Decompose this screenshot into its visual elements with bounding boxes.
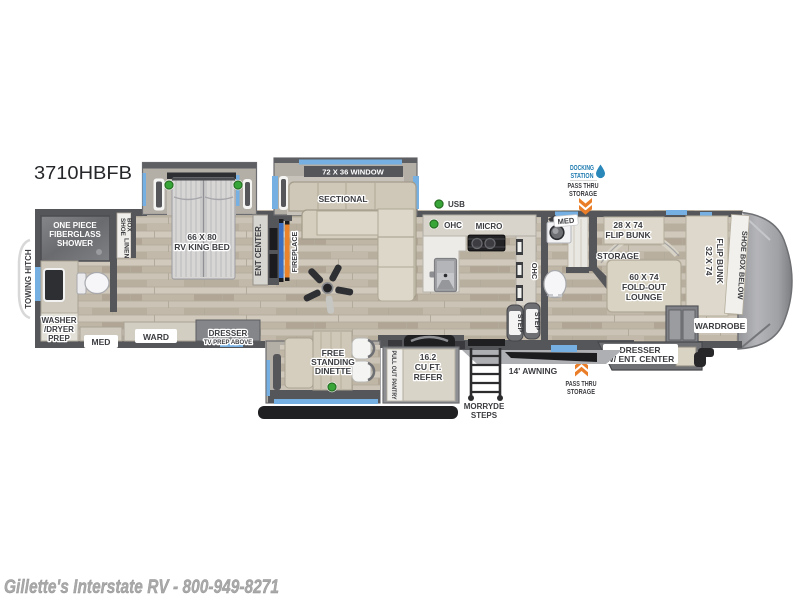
svg-text:BOX: BOX bbox=[126, 218, 133, 232]
svg-text:WARD: WARD bbox=[143, 332, 169, 342]
svg-text:TV PREP ABOVE: TV PREP ABOVE bbox=[204, 340, 252, 346]
svg-text:PASS THRU: PASS THRU bbox=[566, 381, 597, 388]
svg-text:SHOWER: SHOWER bbox=[57, 239, 93, 248]
svg-text:66 X 80: 66 X 80 bbox=[187, 232, 217, 242]
svg-text:FLIP BUNK: FLIP BUNK bbox=[715, 238, 725, 284]
svg-text:3710HBFB: 3710HBFB bbox=[34, 162, 132, 183]
svg-text:WASHER: WASHER bbox=[41, 316, 76, 325]
svg-text:PREP: PREP bbox=[48, 334, 70, 343]
svg-text:LOUNGE: LOUNGE bbox=[626, 292, 663, 302]
svg-text:60 X 74: 60 X 74 bbox=[629, 272, 659, 282]
svg-text:STEPS: STEPS bbox=[471, 411, 498, 420]
svg-text:DOCKING: DOCKING bbox=[570, 165, 594, 172]
svg-text:16.2: 16.2 bbox=[420, 352, 437, 362]
svg-text:ONE PIECE: ONE PIECE bbox=[53, 221, 97, 230]
svg-text:FIREPLACE: FIREPLACE bbox=[290, 231, 299, 272]
svg-text:PULL OUT PANTRY: PULL OUT PANTRY bbox=[390, 351, 397, 401]
svg-text:SECTIONAL: SECTIONAL bbox=[318, 194, 367, 204]
svg-text:32 X 74: 32 X 74 bbox=[704, 246, 714, 276]
svg-text:OHC: OHC bbox=[530, 263, 539, 280]
svg-text:STEP: STEP bbox=[516, 314, 523, 333]
svg-text:STORAGE: STORAGE bbox=[567, 389, 595, 396]
svg-text:14' AWNING: 14' AWNING bbox=[509, 366, 558, 376]
svg-text:TOWING HITCH: TOWING HITCH bbox=[24, 249, 33, 309]
svg-text:STORAGE: STORAGE bbox=[569, 191, 597, 198]
svg-text:DINETTE: DINETTE bbox=[315, 366, 352, 376]
svg-text:MORRYDE: MORRYDE bbox=[464, 402, 505, 411]
svg-text:LINEN: LINEN bbox=[123, 238, 130, 258]
svg-text:Gillette's Interstate RV - 800: Gillette's Interstate RV - 800-949-8271 bbox=[4, 576, 279, 598]
svg-text:STEP: STEP bbox=[533, 312, 540, 331]
svg-text:OHC: OHC bbox=[444, 221, 462, 230]
svg-text:ENT CENTER.: ENT CENTER. bbox=[254, 224, 263, 276]
svg-text:72 X 36 WINDOW: 72 X 36 WINDOW bbox=[322, 168, 384, 177]
svg-text:USB: USB bbox=[448, 200, 465, 209]
svg-text:MICRO: MICRO bbox=[476, 222, 503, 231]
svg-text:DRESSER: DRESSER bbox=[209, 329, 248, 338]
svg-text:REFER: REFER bbox=[414, 372, 443, 382]
svg-text:STATION: STATION bbox=[571, 173, 594, 180]
svg-text:SHOE: SHOE bbox=[119, 218, 126, 236]
svg-text:W/ ENT. CENTER: W/ ENT. CENTER bbox=[606, 354, 674, 364]
svg-text:FIBERGLASS: FIBERGLASS bbox=[49, 230, 101, 239]
svg-text:FOLD-OUT: FOLD-OUT bbox=[622, 282, 667, 292]
svg-text:CU FT.: CU FT. bbox=[415, 362, 441, 372]
svg-text:FLIP BUNK: FLIP BUNK bbox=[605, 230, 651, 240]
svg-text:MED: MED bbox=[557, 216, 575, 226]
svg-text:MED: MED bbox=[92, 337, 111, 347]
svg-text:28 X 74: 28 X 74 bbox=[613, 220, 643, 230]
svg-text:/DRYER: /DRYER bbox=[44, 325, 74, 334]
svg-text:WARDROBE: WARDROBE bbox=[695, 321, 746, 331]
svg-text:PASS THRU: PASS THRU bbox=[568, 183, 599, 190]
svg-text:RV KING BED: RV KING BED bbox=[174, 242, 230, 252]
